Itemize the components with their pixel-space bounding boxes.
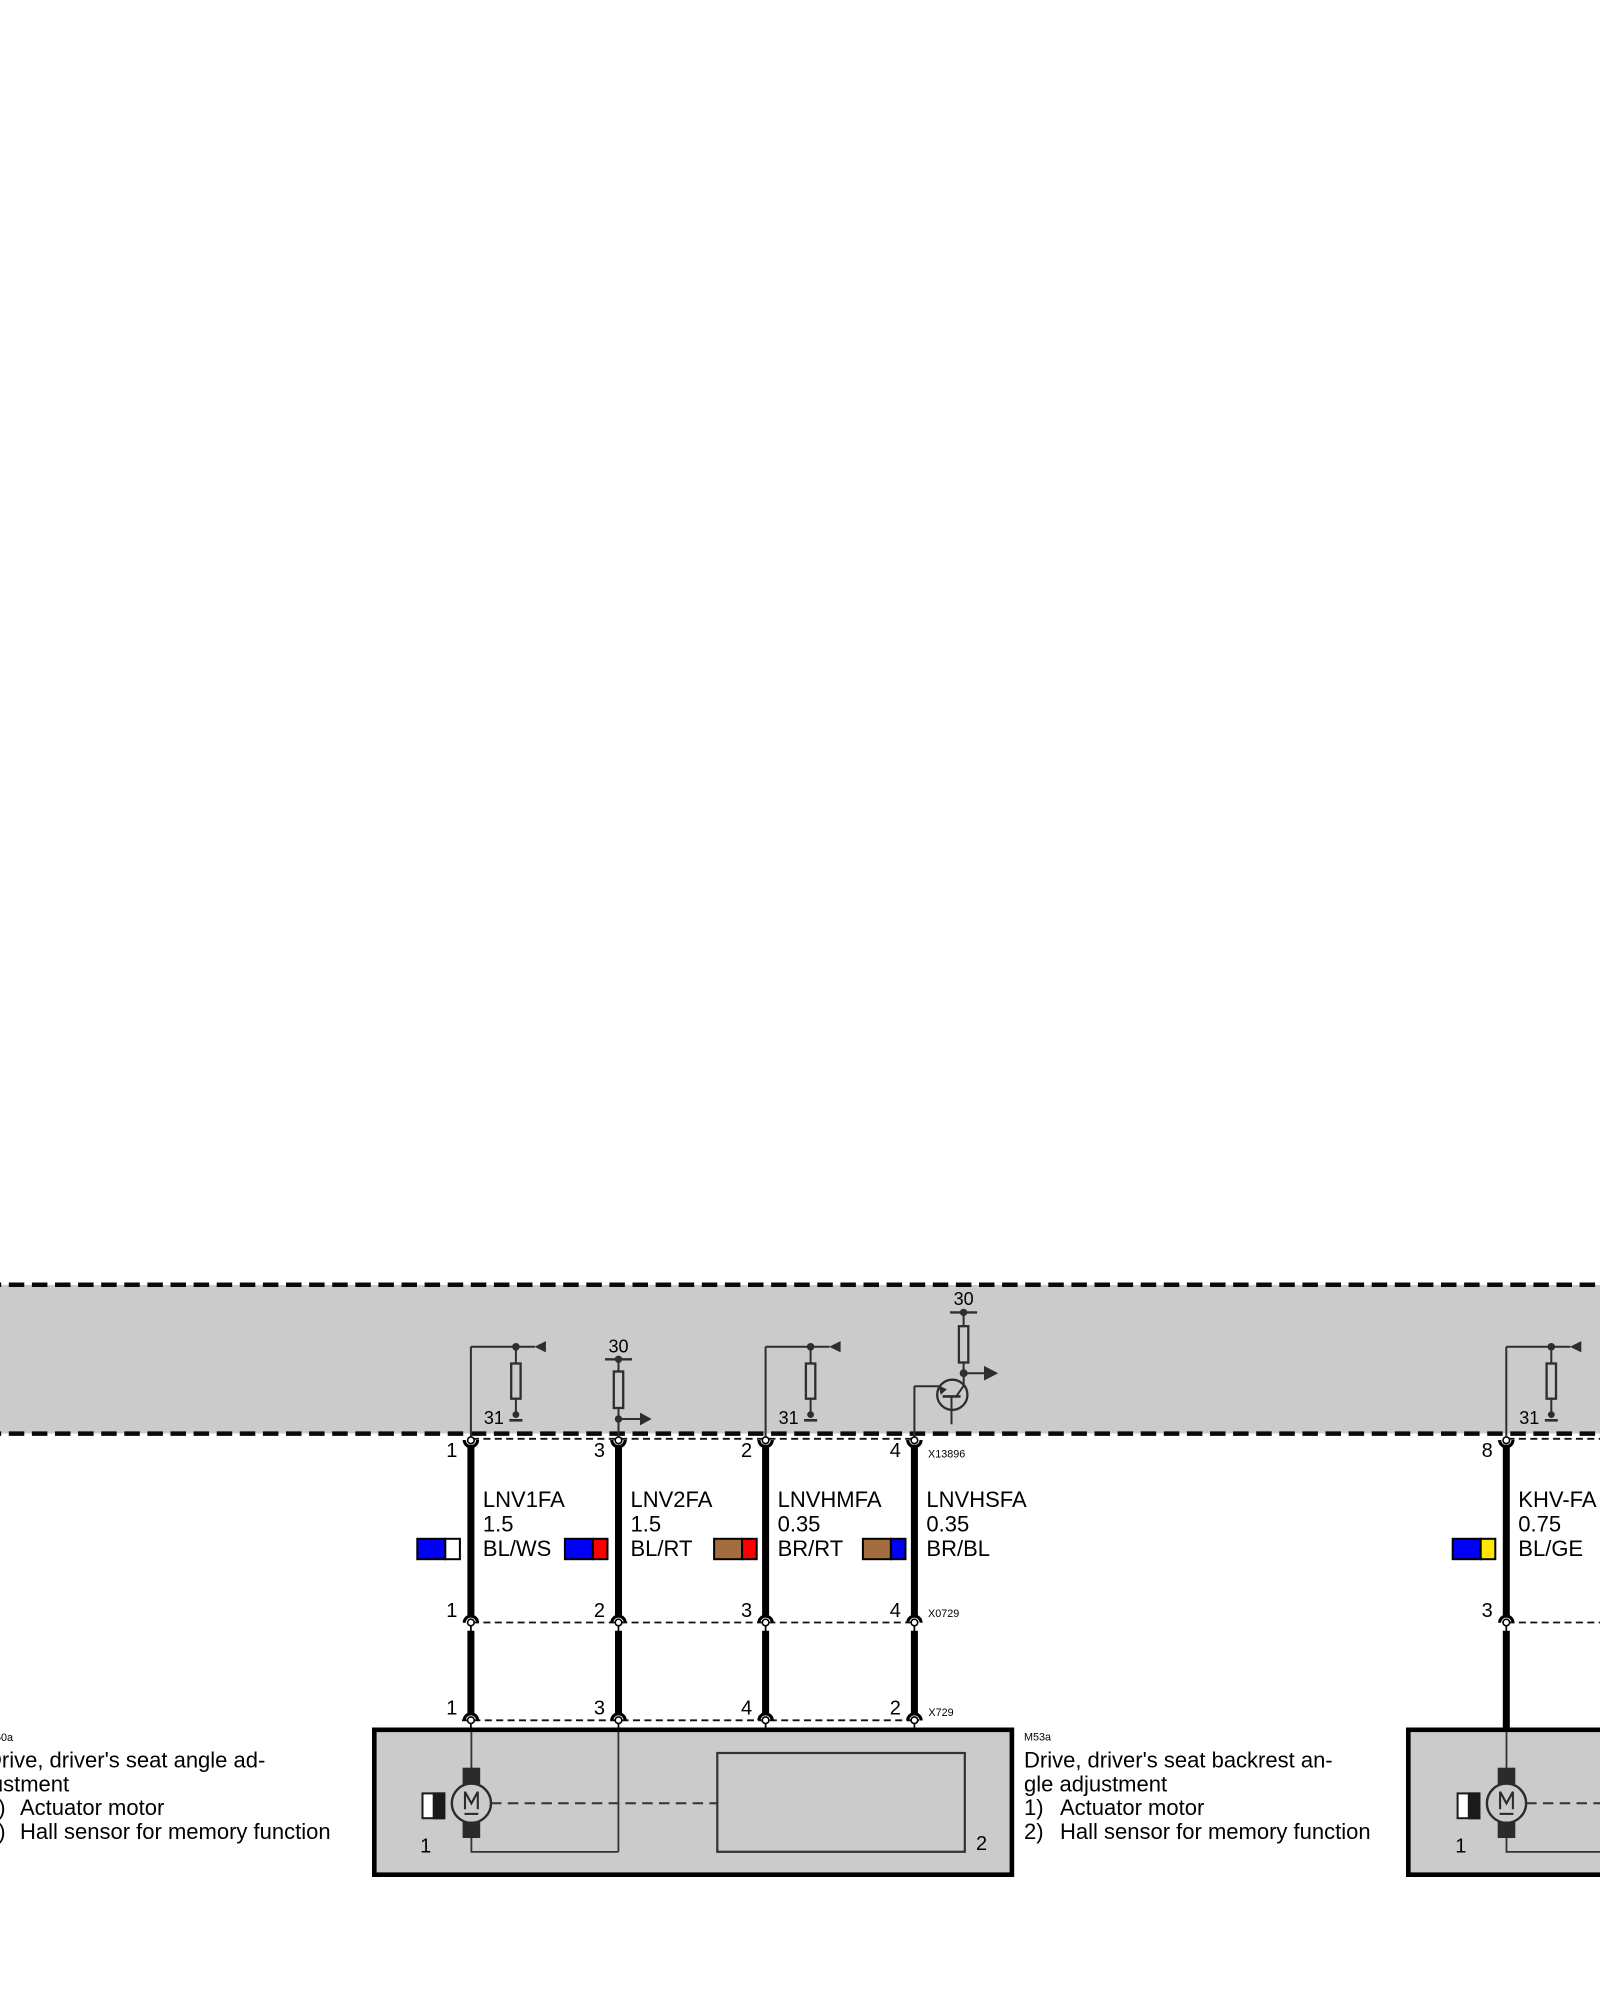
svg-text:3: 3: [741, 1600, 752, 1622]
svg-text:X0729: X0729: [928, 1608, 959, 1620]
svg-text:1: 1: [420, 1835, 431, 1857]
svg-text:31: 31: [779, 1408, 799, 1428]
svg-text:1: 1: [446, 1440, 457, 1462]
svg-text:1): 1): [1024, 1795, 1044, 1820]
svg-text:1: 1: [446, 1600, 457, 1622]
svg-text:3: 3: [594, 1698, 605, 1720]
svg-text:31: 31: [484, 1408, 504, 1428]
svg-text:31: 31: [1519, 1408, 1539, 1428]
svg-text:0.35: 0.35: [926, 1511, 969, 1536]
svg-text:BL/WS: BL/WS: [483, 1536, 551, 1561]
svg-text:Drive, driver's seat backrest: Drive, driver's seat backrest an-: [1024, 1748, 1333, 1773]
svg-text:BR/BL: BR/BL: [926, 1536, 990, 1561]
svg-text:Drive, driver's seat angle ad-: Drive, driver's seat angle ad-: [0, 1748, 265, 1773]
svg-text:LNVHSFA: LNVHSFA: [926, 1487, 1027, 1512]
svg-text:M53a: M53a: [1024, 1732, 1051, 1744]
svg-text:1: 1: [446, 1698, 457, 1720]
svg-text:LNV1FA: LNV1FA: [483, 1487, 565, 1512]
svg-text:0.35: 0.35: [778, 1511, 821, 1536]
svg-text:30: 30: [608, 1337, 628, 1357]
svg-text:BL/GE: BL/GE: [1518, 1536, 1583, 1561]
svg-text:LNV2FA: LNV2FA: [631, 1487, 713, 1512]
svg-text:Hall sensor for memory functio: Hall sensor for memory function: [20, 1819, 331, 1844]
svg-text:BL/RT: BL/RT: [631, 1536, 693, 1561]
svg-text:2: 2: [741, 1440, 752, 1462]
svg-text:2: 2: [890, 1698, 901, 1720]
svg-text:X729: X729: [928, 1707, 953, 1719]
svg-text:3: 3: [1482, 1600, 1493, 1622]
svg-text:M50a: M50a: [0, 1732, 13, 1744]
svg-text:2): 2): [0, 1819, 6, 1844]
svg-text:BR/RT: BR/RT: [778, 1536, 844, 1561]
svg-text:LNVHMFA: LNVHMFA: [778, 1487, 882, 1512]
svg-text:2: 2: [594, 1600, 605, 1622]
svg-text:1: 1: [1455, 1835, 1466, 1857]
svg-text:4: 4: [890, 1440, 901, 1462]
svg-text:4: 4: [890, 1600, 901, 1622]
svg-text:justment: justment: [0, 1771, 69, 1796]
svg-text:Hall sensor for memory functio: Hall sensor for memory function: [1060, 1819, 1371, 1844]
svg-text:0.75: 0.75: [1518, 1511, 1561, 1536]
svg-text:3: 3: [594, 1440, 605, 1462]
svg-text:Actuator motor: Actuator motor: [20, 1795, 164, 1820]
svg-text:2): 2): [1024, 1819, 1044, 1844]
svg-text:1.5: 1.5: [631, 1511, 662, 1536]
svg-text:X13896: X13896: [928, 1448, 965, 1460]
svg-text:8: 8: [1482, 1440, 1493, 1462]
svg-text:KHV-FA: KHV-FA: [1518, 1487, 1597, 1512]
svg-text:4: 4: [741, 1698, 752, 1720]
svg-text:1): 1): [0, 1795, 6, 1820]
svg-text:30: 30: [954, 1289, 974, 1309]
svg-text:gle adjustment: gle adjustment: [1024, 1771, 1167, 1796]
svg-text:1.5: 1.5: [483, 1511, 514, 1536]
svg-text:2: 2: [976, 1833, 987, 1855]
svg-text:Actuator motor: Actuator motor: [1060, 1795, 1204, 1820]
